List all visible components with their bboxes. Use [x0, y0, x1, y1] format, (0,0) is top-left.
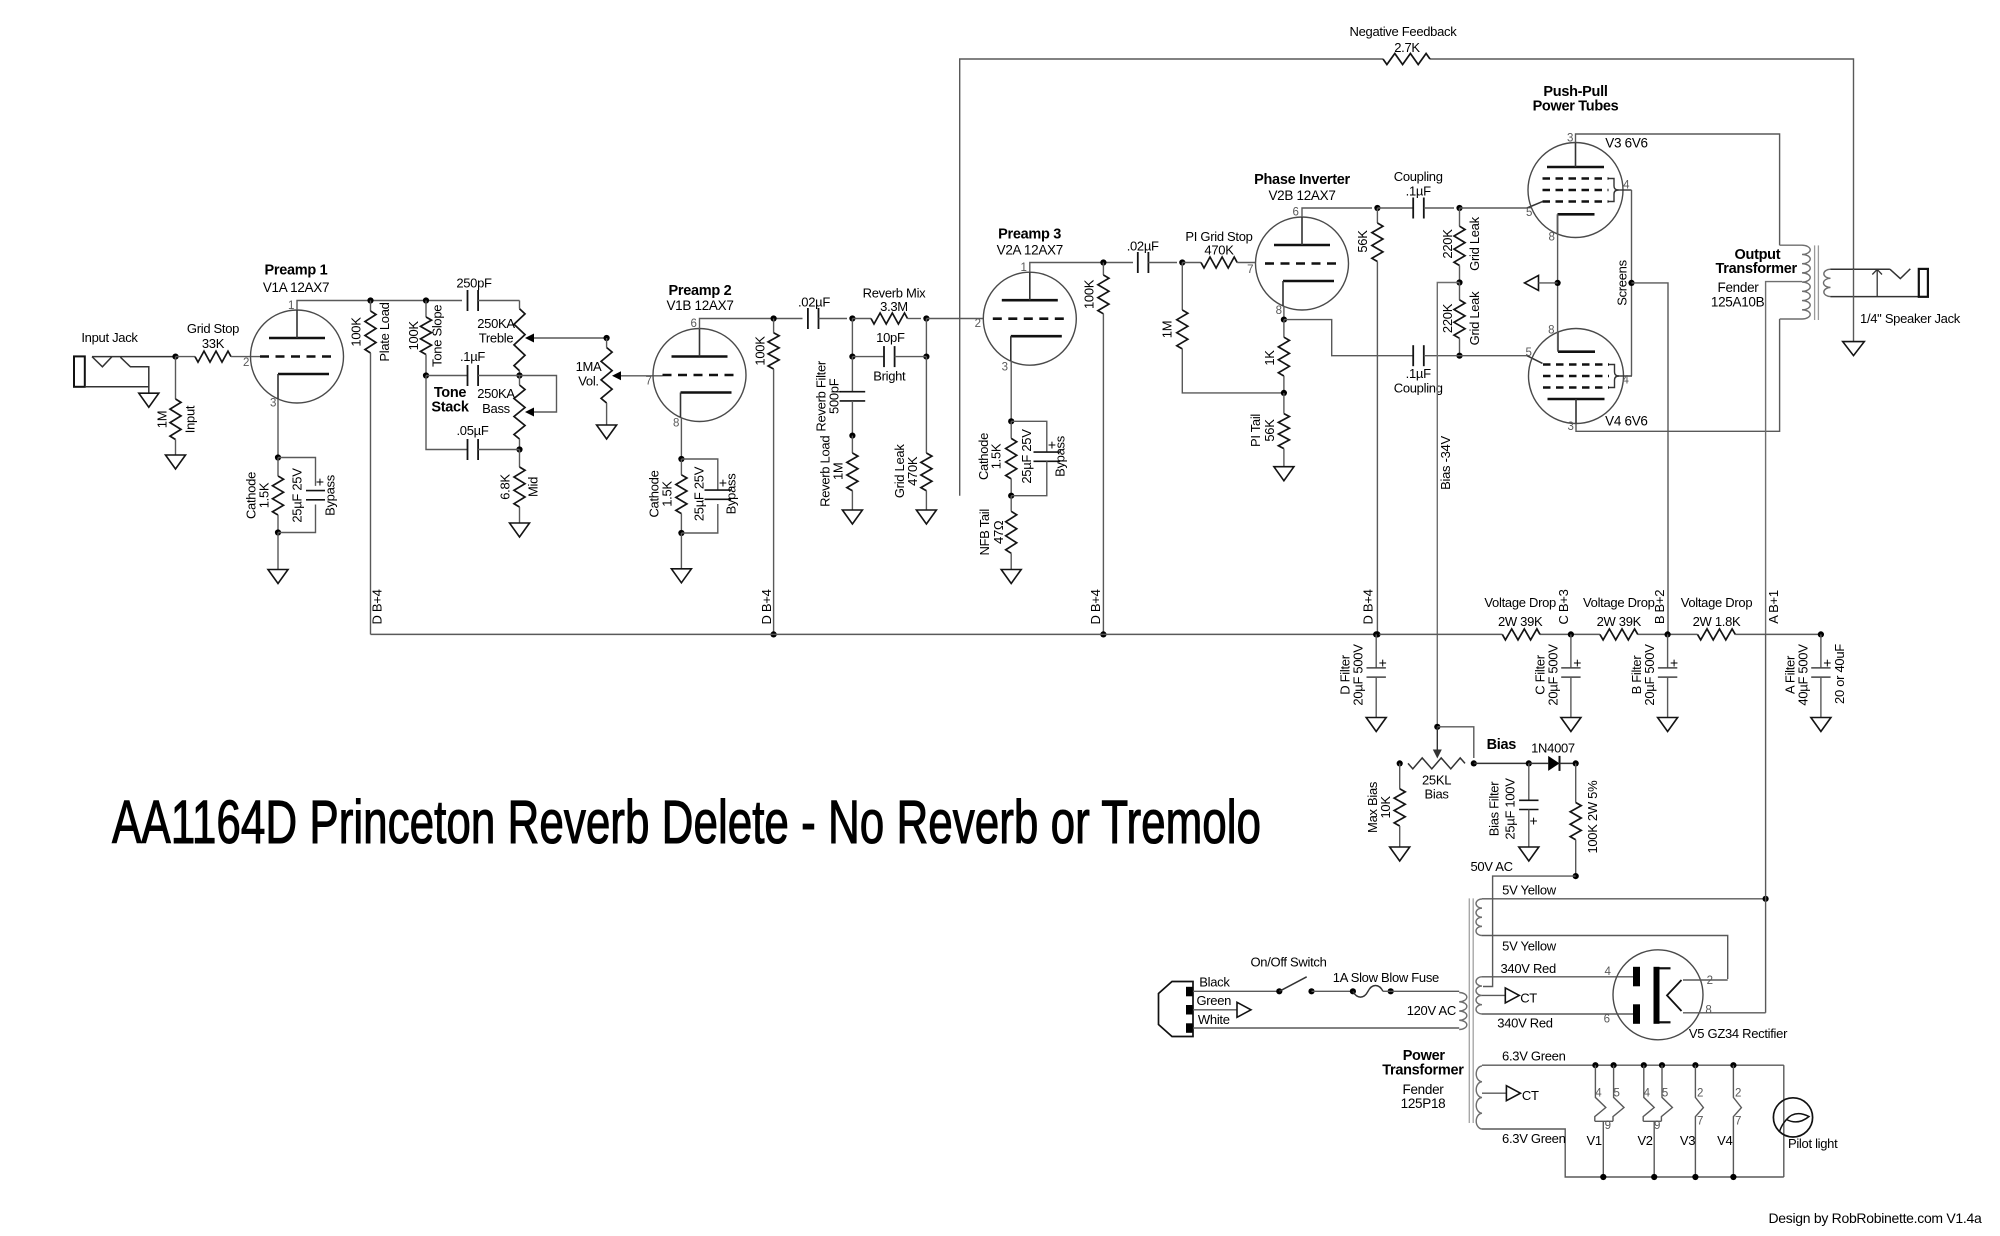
svg-text:8: 8 — [1548, 325, 1554, 337]
svg-text:2: 2 — [243, 357, 249, 369]
svg-text:Grid Stop: Grid Stop — [187, 321, 239, 336]
svg-text:V5 GZ34 Rectifier: V5 GZ34 Rectifier — [1689, 1026, 1788, 1041]
svg-text:40µF 500V: 40µF 500V — [1795, 644, 1810, 706]
svg-text:Bypass: Bypass — [1053, 435, 1068, 477]
svg-text:20µF 500V: 20µF 500V — [1545, 644, 1560, 706]
svg-text:Preamp 3: Preamp 3 — [998, 227, 1061, 243]
svg-text:Preamp 2: Preamp 2 — [669, 283, 732, 299]
svg-text:20µF 500V: 20µF 500V — [1351, 644, 1366, 706]
svg-text:1M: 1M — [1159, 321, 1174, 338]
svg-text:D B+4: D B+4 — [370, 589, 385, 624]
svg-text:Bypass: Bypass — [323, 474, 338, 516]
svg-text:Plate Load: Plate Load — [377, 302, 392, 361]
svg-text:100K: 100K — [753, 336, 768, 366]
svg-text:6: 6 — [1292, 206, 1298, 218]
svg-text:4: 4 — [1604, 966, 1611, 978]
svg-text:3.3M: 3.3M — [880, 299, 908, 314]
svg-text:1.5K: 1.5K — [989, 443, 1004, 469]
svg-text:V2B 12AX7: V2B 12AX7 — [1268, 188, 1335, 203]
svg-text:8: 8 — [1549, 231, 1555, 243]
svg-text:5: 5 — [1662, 1087, 1668, 1099]
svg-text:6: 6 — [1604, 1014, 1610, 1026]
svg-text:340V Red: 340V Red — [1497, 1015, 1552, 1030]
svg-text:On/Off Switch: On/Off Switch — [1250, 955, 1326, 970]
svg-text:3: 3 — [1568, 421, 1574, 433]
svg-text:Fender: Fender — [1718, 280, 1760, 295]
svg-text:1.5K: 1.5K — [257, 482, 272, 508]
svg-text:PI Tail: PI Tail — [1248, 414, 1263, 447]
svg-text:Negative Feedback: Negative Feedback — [1350, 24, 1458, 39]
svg-text:1M: 1M — [831, 463, 846, 480]
svg-text:+: + — [1670, 655, 1678, 671]
svg-text:10pF: 10pF — [876, 330, 905, 345]
svg-text:V4: V4 — [1717, 1133, 1732, 1148]
svg-text:Design by RobRobinette.com V1.: Design by RobRobinette.com V1.4a — [1769, 1210, 1982, 1226]
svg-text:4: 4 — [1623, 180, 1630, 192]
svg-text:Transformer: Transformer — [1716, 261, 1798, 277]
svg-text:Input Jack: Input Jack — [81, 330, 138, 345]
svg-text:250pF: 250pF — [456, 276, 492, 291]
svg-text:V2: V2 — [1637, 1133, 1652, 1148]
svg-text:D B+4: D B+4 — [1088, 589, 1103, 624]
svg-text:220K: 220K — [1440, 303, 1455, 333]
svg-text:6: 6 — [690, 318, 696, 330]
svg-text:3: 3 — [270, 398, 276, 410]
svg-text:Stack: Stack — [431, 400, 469, 416]
svg-text:Mid: Mid — [526, 477, 541, 497]
svg-text:AA1164D Princeton Reverb Delet: AA1164D Princeton Reverb Delete - No Rev… — [112, 788, 1261, 856]
svg-text:340V Red: 340V Red — [1500, 961, 1555, 976]
svg-text:Preamp 1: Preamp 1 — [265, 263, 328, 279]
svg-text:Pilot light: Pilot light — [1788, 1136, 1838, 1151]
svg-text:V1B 12AX7: V1B 12AX7 — [666, 298, 733, 313]
svg-text:.02µF: .02µF — [798, 295, 830, 310]
svg-text:6.3V Green: 6.3V Green — [1502, 1049, 1566, 1064]
svg-text:C B+3: C B+3 — [1556, 589, 1571, 624]
svg-text:25µF 100V: 25µF 100V — [1503, 778, 1518, 840]
svg-text:125A10B: 125A10B — [1711, 295, 1765, 310]
svg-text:1MA: 1MA — [576, 359, 602, 374]
svg-text:50V AC: 50V AC — [1470, 859, 1512, 874]
svg-text:1/4" Speaker Jack: 1/4" Speaker Jack — [1860, 311, 1961, 326]
svg-text:Bypass: Bypass — [724, 473, 739, 515]
svg-text:Power Tubes: Power Tubes — [1533, 99, 1619, 115]
svg-text:3: 3 — [1002, 361, 1008, 373]
svg-text:Green: Green — [1196, 993, 1231, 1008]
svg-text:100K: 100K — [349, 317, 364, 347]
svg-text:125P18: 125P18 — [1401, 1096, 1446, 1111]
svg-text:Bias Filter: Bias Filter — [1487, 781, 1502, 836]
svg-text:4: 4 — [1595, 1087, 1602, 1099]
svg-text:5V Yellow: 5V Yellow — [1502, 883, 1557, 898]
svg-text:Coupling: Coupling — [1394, 381, 1443, 396]
svg-text:25KL: 25KL — [1422, 773, 1451, 788]
svg-text:33K: 33K — [202, 336, 225, 351]
svg-text:20µF 500V: 20µF 500V — [1642, 644, 1657, 706]
svg-text:Input: Input — [183, 405, 198, 433]
svg-text:7: 7 — [1247, 264, 1253, 276]
svg-text:2: 2 — [975, 318, 981, 330]
svg-text:25µF 25V: 25µF 25V — [1019, 429, 1034, 484]
svg-text:25µF 25V: 25µF 25V — [692, 466, 707, 521]
svg-text:CT: CT — [1522, 1088, 1539, 1103]
svg-text:100K 2W 5%: 100K 2W 5% — [1585, 780, 1600, 854]
svg-text:D B+4: D B+4 — [759, 589, 774, 624]
svg-text:470K: 470K — [905, 456, 920, 486]
svg-text:5: 5 — [1613, 1087, 1619, 1099]
svg-text:4: 4 — [1623, 375, 1630, 387]
svg-text:+: + — [1573, 655, 1581, 671]
svg-text:2W 1.8K: 2W 1.8K — [1693, 614, 1741, 629]
svg-text:Bass: Bass — [482, 401, 511, 416]
svg-text:1M: 1M — [155, 411, 170, 428]
svg-text:V2A 12AX7: V2A 12AX7 — [997, 243, 1063, 258]
svg-text:Tone Slope: Tone Slope — [430, 305, 445, 367]
svg-text:7: 7 — [1735, 1116, 1741, 1128]
svg-text:470K: 470K — [1204, 242, 1234, 257]
svg-text:7: 7 — [1697, 1116, 1703, 1128]
svg-text:Bias: Bias — [1425, 787, 1450, 802]
svg-text:9: 9 — [1605, 1120, 1611, 1132]
svg-text:+: + — [1823, 655, 1831, 671]
svg-text:.1µF: .1µF — [1406, 366, 1431, 381]
svg-text:.1µF: .1µF — [460, 349, 485, 364]
svg-text:4: 4 — [1644, 1087, 1651, 1099]
svg-text:1A Slow Blow Fuse: 1A Slow Blow Fuse — [1333, 970, 1439, 985]
svg-text:Phase Inverter: Phase Inverter — [1254, 172, 1350, 188]
svg-text:Bias: Bias — [1487, 737, 1517, 753]
svg-text:25µF 25V: 25µF 25V — [290, 468, 305, 523]
svg-text:Voltage Drop: Voltage Drop — [1583, 595, 1655, 610]
svg-text:7: 7 — [645, 376, 651, 388]
svg-text:A B+1: A B+1 — [1766, 590, 1781, 624]
svg-text:250KA: 250KA — [477, 386, 515, 401]
svg-text:1K: 1K — [1262, 350, 1277, 366]
svg-text:220K: 220K — [1440, 229, 1455, 259]
svg-text:V1A 12AX7: V1A 12AX7 — [263, 280, 329, 295]
svg-text:2W 39K: 2W 39K — [1498, 614, 1543, 629]
svg-text:Voltage Drop: Voltage Drop — [1484, 595, 1556, 610]
svg-text:3: 3 — [1567, 133, 1573, 145]
svg-text:Treble: Treble — [479, 331, 514, 346]
svg-text:1N4007: 1N4007 — [1531, 740, 1575, 755]
svg-text:V1: V1 — [1587, 1133, 1602, 1148]
svg-text:5: 5 — [1526, 207, 1532, 219]
svg-text:V3 6V6: V3 6V6 — [1605, 136, 1647, 151]
svg-text:2: 2 — [1707, 975, 1713, 987]
svg-text:20 or 40uF: 20 or 40uF — [1832, 644, 1847, 704]
svg-text:Coupling: Coupling — [1394, 169, 1443, 184]
svg-text:1.5K: 1.5K — [660, 481, 675, 507]
svg-text:+: + — [1379, 655, 1387, 671]
svg-text:56K: 56K — [1262, 419, 1277, 442]
svg-text:Bright: Bright — [873, 369, 906, 384]
svg-text:9: 9 — [1654, 1120, 1660, 1132]
svg-text:500pF: 500pF — [827, 378, 842, 414]
svg-text:V4 6V6: V4 6V6 — [1605, 414, 1647, 429]
svg-text:1: 1 — [288, 300, 294, 312]
svg-text:250KA: 250KA — [477, 316, 515, 331]
svg-text:V3: V3 — [1680, 1133, 1695, 1148]
svg-text:Transformer: Transformer — [1382, 1063, 1464, 1079]
svg-text:.05µF: .05µF — [456, 423, 488, 438]
svg-text:Fender: Fender — [1403, 1082, 1445, 1097]
svg-text:6.3V Green: 6.3V Green — [1502, 1131, 1566, 1146]
svg-text:.1µF: .1µF — [1406, 183, 1431, 198]
svg-text:Grid Leak: Grid Leak — [1467, 291, 1482, 345]
svg-text:Bias -34V: Bias -34V — [1438, 436, 1453, 490]
svg-text:47Ω: 47Ω — [991, 520, 1006, 544]
svg-text:6.8K: 6.8K — [498, 474, 513, 500]
svg-text:8: 8 — [1705, 1005, 1711, 1017]
svg-text:5: 5 — [1525, 347, 1531, 359]
svg-text:56K: 56K — [1355, 230, 1370, 253]
svg-text:.02µF: .02µF — [1127, 239, 1159, 254]
svg-text:2.7K: 2.7K — [1394, 40, 1420, 55]
svg-text:Grid Leak: Grid Leak — [1467, 216, 1482, 270]
svg-text:100K: 100K — [1082, 279, 1097, 309]
svg-text:D B+4: D B+4 — [1361, 589, 1376, 624]
svg-text:2: 2 — [1697, 1088, 1703, 1100]
svg-text:Voltage Drop: Voltage Drop — [1681, 595, 1753, 610]
svg-text:100K: 100K — [406, 321, 421, 351]
svg-text:120V AC: 120V AC — [1407, 1003, 1456, 1018]
svg-text:1: 1 — [1020, 262, 1026, 274]
svg-text:Screens: Screens — [1615, 259, 1630, 305]
svg-text:2: 2 — [1735, 1088, 1741, 1100]
svg-text:8: 8 — [673, 417, 679, 429]
svg-text:B B+2: B B+2 — [1652, 590, 1667, 624]
svg-text:Black: Black — [1199, 974, 1230, 989]
svg-text:CT: CT — [1520, 990, 1537, 1005]
svg-text:White: White — [1198, 1012, 1230, 1027]
svg-text:+: + — [1530, 812, 1538, 828]
svg-text:8: 8 — [1276, 305, 1282, 317]
svg-text:5V Yellow: 5V Yellow — [1502, 939, 1557, 954]
svg-text:2W 39K: 2W 39K — [1597, 614, 1642, 629]
svg-text:10K: 10K — [1378, 796, 1393, 819]
svg-text:Vol.: Vol. — [578, 374, 598, 389]
